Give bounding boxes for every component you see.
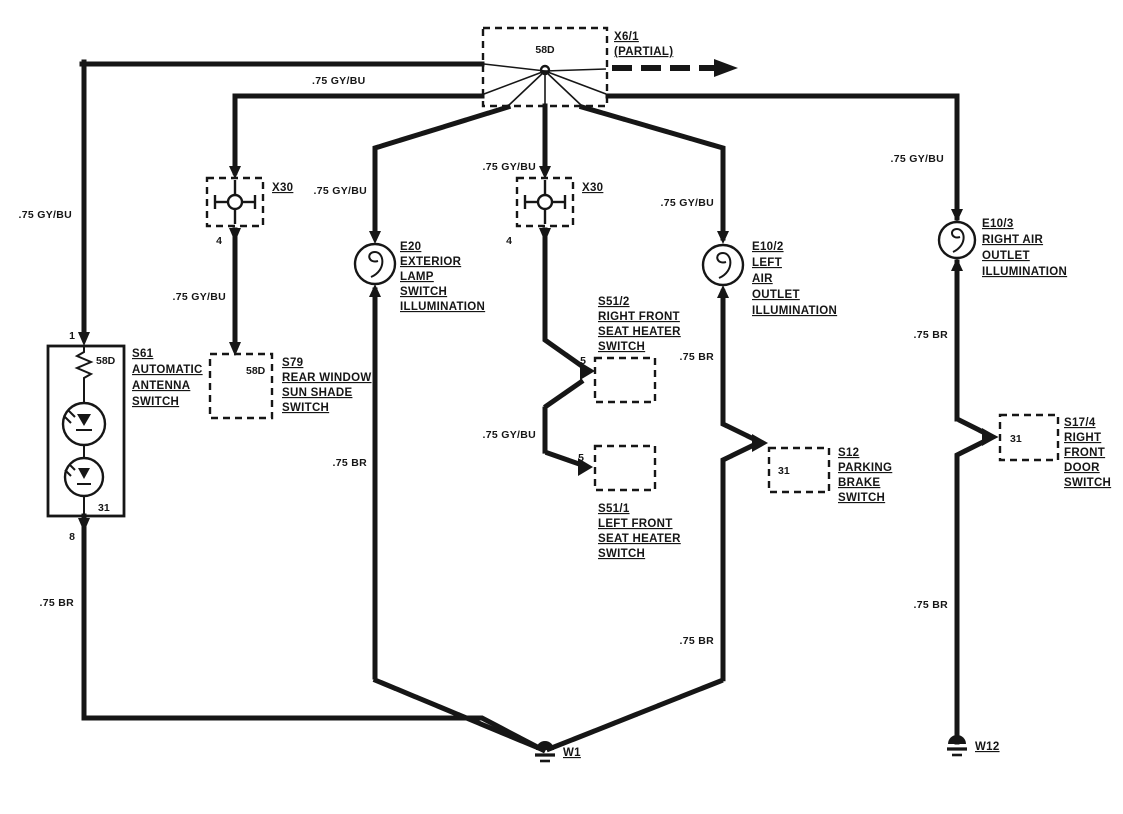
wire-s51-2-feed (545, 230, 586, 369)
x6-1-note-label: (PARTIAL) (614, 46, 673, 58)
s79-id-label: S79 (282, 357, 303, 369)
s79-box (210, 354, 272, 418)
exit-arrow-icon (369, 284, 381, 297)
s17-4-id-label: S17/4 (1064, 417, 1096, 429)
wire-code: .75 BR (40, 597, 75, 609)
s12-name-line: SWITCH (838, 492, 885, 504)
lamp-icon (63, 403, 105, 445)
s17-4-name-line: FRONT (1064, 447, 1105, 459)
entry-arrow-icon (752, 434, 768, 452)
e10-3-id-label: E10/3 (982, 218, 1014, 230)
e20-name-line: LAMP (400, 271, 434, 283)
s61-pin-top-label: 1 (69, 330, 75, 342)
lamp-icon (703, 245, 743, 285)
s61-name-line: AUTOMATIC (132, 364, 203, 376)
wire-code: .75 GY/BU (483, 161, 536, 173)
wiring-diagram-page: 58D X6/1 (PARTIAL) X30 4 X30 4 (0, 0, 1123, 809)
wire-s61-ground-run (84, 516, 543, 750)
w12-label: W12 (975, 741, 1000, 753)
s79-name-line: REAR WINDOW (282, 372, 372, 384)
x6-1-id-label: X6/1 (614, 31, 639, 43)
s51-2-box (595, 358, 655, 402)
entry-arrow-icon (951, 209, 963, 222)
connector-x30-center: X30 4 (506, 166, 603, 247)
exit-arrow-icon (951, 258, 963, 271)
e10-2-name-line: ILLUMINATION (752, 305, 837, 317)
s12-terminal-label: 31 (778, 465, 790, 477)
e10-2-id-label: E10/2 (752, 241, 784, 253)
filament-icon (952, 229, 964, 252)
s79-name-line: SWITCH (282, 402, 329, 414)
s79-name-line: SUN SHADE (282, 387, 352, 399)
s61-terminal-bottom-label: 31 (98, 502, 110, 514)
wire-code-labels: .75 GY/BU .75 GY/BU .75 GY/BU .75 GY/BU … (19, 75, 949, 647)
plug-symbol-icon (215, 180, 255, 224)
wire-e10-3-ground-run (957, 262, 993, 742)
wire-code: .75 GY/BU (661, 197, 714, 209)
s61-name-line: SWITCH (132, 396, 179, 408)
entry-arrow-icon (369, 231, 381, 244)
e10-3-name-line: OUTLET (982, 250, 1030, 262)
wiring-diagram-canvas: 58D X6/1 (PARTIAL) X30 4 X30 4 (0, 0, 1123, 809)
entry-arrow-icon (982, 428, 998, 446)
x30-center-pin-label: 4 (506, 235, 512, 247)
x30-left-pin-label: 4 (216, 235, 222, 247)
wires (82, 59, 993, 750)
lamp-icon (939, 222, 975, 258)
s51-1-box (595, 446, 655, 490)
s51-2-name-line: SEAT HEATER (598, 326, 681, 338)
wire-code: .75 GY/BU (173, 291, 226, 303)
component-s51-1: 5 S51/1 LEFT FRONT SEAT HEATER SWITCH (578, 446, 681, 560)
component-s79: 58D S79 REAR WINDOW SUN SHADE SWITCH (210, 342, 372, 418)
e10-2-name-line: LEFT (752, 257, 782, 269)
exit-arrow-icon (539, 228, 551, 242)
filament-icon (717, 253, 730, 278)
e20-name-line: ILLUMINATION (400, 301, 485, 313)
s51-2-name-line: SWITCH (598, 341, 645, 353)
wire-code: .75 GY/BU (891, 153, 944, 165)
s17-4-box (1000, 415, 1058, 460)
s12-name-line: BRAKE (838, 477, 880, 489)
s17-4-name-line: SWITCH (1064, 477, 1111, 489)
s51-1-name-line: SWITCH (598, 548, 645, 560)
component-s17-4: 31 S17/4 RIGHT FRONT DOOR SWITCH (982, 415, 1111, 489)
wire-code: .75 GY/BU (483, 429, 536, 441)
s61-terminal-top-label: 58D (96, 355, 116, 367)
exit-arrow-icon (229, 228, 241, 242)
e20-name-line: SWITCH (400, 286, 447, 298)
exit-arrow-icon (717, 285, 729, 298)
s12-id-label: S12 (838, 447, 859, 459)
wire-e20-ground-run (375, 290, 541, 749)
s61-id-label: S61 (132, 348, 154, 360)
s51-1-name-line: LEFT FRONT (598, 518, 673, 530)
e10-3-name-line: ILLUMINATION (982, 266, 1067, 278)
wire-code: .75 BR (914, 599, 949, 611)
wire-code: .75 BR (680, 635, 715, 647)
component-s61: 1 58D 31 8 S61 AUTOMATIC ANTENNA SWITCH (48, 330, 203, 543)
wire-e10-2-feed (582, 107, 723, 238)
s51-2-pin-label: 5 (580, 355, 586, 367)
s79-terminal-label: 58D (246, 365, 266, 377)
s51-2-id-label: S51/2 (598, 296, 630, 308)
wire-code: .75 GY/BU (312, 75, 365, 87)
exit-arrow-icon (78, 518, 90, 532)
s17-4-name-line: DOOR (1064, 462, 1100, 474)
entry-arrow-icon (717, 231, 729, 244)
s61-name-line: ANTENNA (132, 380, 190, 392)
e10-2-name-line: AIR (752, 273, 773, 285)
s51-1-name-line: SEAT HEATER (598, 533, 681, 545)
s51-1-pin-label: 5 (578, 452, 584, 464)
s51-2-name-line: RIGHT FRONT (598, 311, 680, 323)
connector-x30-left: X30 4 (207, 166, 293, 247)
lamp-icon (65, 458, 103, 496)
wire-code: .75 GY/BU (19, 209, 72, 221)
ground-w12: W12 (947, 735, 1000, 755)
x30-left-id-label: X30 (272, 182, 293, 194)
filament-icon (369, 252, 382, 277)
e10-2-name-line: OUTLET (752, 289, 800, 301)
x6-1-arrowhead-icon (714, 59, 738, 77)
hub-terminal-label: 58D (535, 44, 555, 56)
s17-4-terminal-label: 31 (1010, 433, 1022, 445)
wire-code: .75 BR (333, 457, 368, 469)
hub-fan-lines (484, 64, 606, 106)
wire-code: .75 GY/BU (314, 185, 367, 197)
s61-pin-bottom-label: 8 (69, 531, 75, 543)
w1-label: W1 (563, 747, 581, 759)
ground-icon (948, 735, 966, 744)
s17-4-name-line: RIGHT (1064, 432, 1101, 444)
e10-3-name-line: RIGHT AIR (982, 234, 1043, 246)
wire-code: .75 BR (914, 329, 949, 341)
e20-name-line: EXTERIOR (400, 256, 462, 268)
s51-1-id-label: S51/1 (598, 503, 630, 515)
component-s51-2: 5 S51/2 RIGHT FRONT SEAT HEATER SWITCH (580, 296, 681, 402)
entry-arrow-icon (78, 332, 90, 346)
resistor-icon (77, 346, 91, 403)
x30-center-id-label: X30 (582, 182, 603, 194)
lamp-icon (355, 244, 395, 284)
s12-name-line: PARKING (838, 462, 892, 474)
plug-symbol-icon (525, 180, 565, 224)
wire-code: .75 BR (680, 351, 715, 363)
component-s12: 31 S12 PARKING BRAKE SWITCH (752, 434, 892, 504)
ground-icon (536, 741, 554, 750)
e20-id-label: E20 (400, 241, 421, 253)
wire-s51-1-feed (545, 382, 582, 465)
